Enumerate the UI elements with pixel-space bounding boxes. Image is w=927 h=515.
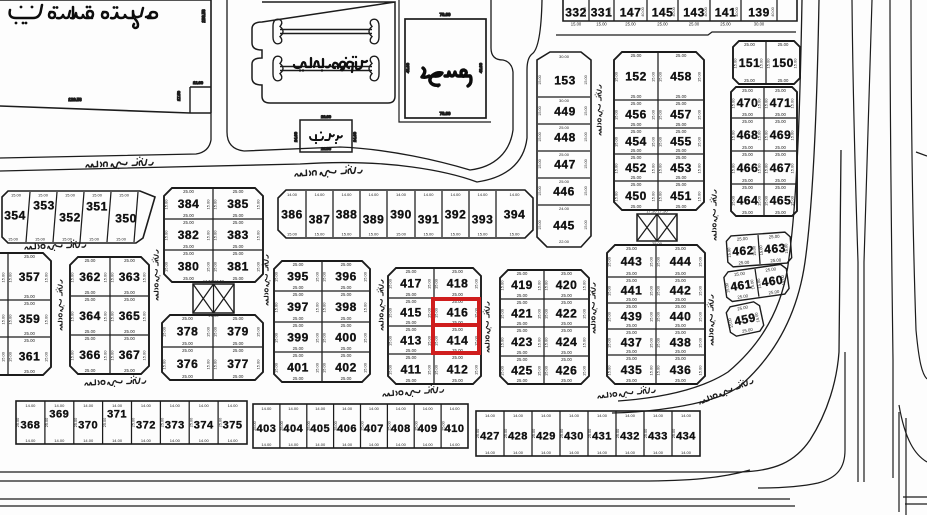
svg-text:15.00: 15.00 (474, 278, 479, 289)
svg-text:15.00: 15.00 (606, 285, 611, 296)
svg-text:40.00: 40.00 (771, 7, 775, 17)
svg-text:15.00: 15.00 (7, 351, 12, 362)
svg-text:15.00: 15.00 (206, 326, 211, 337)
svg-text:25.00: 25.00 (775, 185, 786, 190)
svg-text:15.00: 15.00 (657, 163, 662, 174)
svg-text:25.00: 25.00 (561, 293, 572, 298)
svg-text:14.00: 14.00 (170, 438, 181, 443)
svg-text:15.00: 15.00 (315, 271, 320, 282)
svg-text:439: 439 (621, 309, 643, 323)
svg-text:25.00: 25.00 (561, 321, 572, 326)
svg-text:14.00: 14.00 (199, 403, 210, 408)
svg-text:25.00: 25.00 (233, 341, 244, 346)
svg-text:25.00: 25.00 (182, 316, 193, 321)
svg-text:25.00: 25.00 (183, 220, 194, 225)
svg-text:150: 150 (772, 56, 794, 70)
svg-text:15.00: 15.00 (212, 359, 217, 370)
svg-text:361: 361 (19, 349, 41, 363)
svg-text:15.00: 15.00 (613, 163, 618, 174)
svg-text:15.00: 15.00 (651, 191, 656, 202)
svg-text:15.00: 15.00 (537, 337, 542, 348)
svg-text:25.00: 25.00 (388, 421, 392, 431)
svg-text:15.00: 15.00 (212, 261, 217, 272)
svg-text:15.00: 15.00 (1, 351, 6, 362)
svg-text:14.00: 14.00 (369, 406, 380, 411)
svg-text:408: 408 (391, 423, 411, 435)
svg-text:25.00: 25.00 (631, 122, 642, 127)
svg-text:25.00: 25.00 (24, 338, 35, 343)
svg-text:15.00: 15.00 (606, 365, 611, 376)
svg-text:25.00: 25.00 (742, 210, 753, 215)
svg-text:14.00: 14.00 (450, 192, 461, 197)
svg-text:17.50 17.50: 17.50 17.50 (646, 209, 668, 214)
svg-text:25.00: 25.00 (778, 78, 789, 83)
svg-text:15.00: 15.00 (655, 365, 660, 376)
svg-text:420: 420 (556, 278, 578, 292)
svg-text:402: 402 (335, 360, 357, 374)
svg-text:15.00: 15.00 (584, 75, 588, 85)
svg-text:25.00: 25.00 (737, 236, 749, 242)
svg-text:15.00: 15.00 (584, 132, 588, 142)
svg-text:15.00: 15.00 (11, 193, 22, 198)
svg-text:14.00: 14.00 (513, 450, 524, 455)
svg-text:14.00: 14.00 (261, 406, 272, 411)
svg-text:419: 419 (511, 278, 533, 292)
svg-text:25.00: 25.00 (675, 378, 686, 383)
svg-text:15.00: 15.00 (142, 350, 147, 361)
svg-text:25.00: 25.00 (631, 129, 642, 134)
svg-text:15.00: 15.00 (697, 71, 702, 82)
svg-text:15.00: 15.00 (582, 337, 587, 348)
svg-text:15.00: 15.00 (427, 364, 432, 375)
svg-text:25.00: 25.00 (293, 285, 304, 290)
svg-text:15.00: 15.00 (427, 307, 432, 318)
svg-text:40.00: 40.00 (735, 7, 739, 17)
svg-text:25.00: 25.00 (626, 246, 637, 251)
svg-text:15.00: 15.00 (698, 337, 703, 348)
svg-text:424: 424 (556, 335, 578, 349)
svg-text:25.00: 25.00 (675, 356, 686, 361)
svg-text:15.00: 15.00 (433, 278, 438, 289)
svg-text:14.00: 14.00 (228, 438, 239, 443)
svg-text:15.00: 15.00 (649, 285, 654, 296)
svg-text:15.00: 15.00 (613, 136, 618, 147)
svg-text:15.00: 15.00 (758, 244, 764, 255)
svg-text:15.00: 15.00 (613, 71, 618, 82)
svg-text:25.00: 25.00 (626, 271, 637, 276)
svg-text:25.00: 25.00 (517, 293, 528, 298)
svg-text:25.00: 25.00 (74, 418, 78, 428)
svg-text:401: 401 (287, 360, 309, 374)
svg-text:25.00: 25.00 (672, 429, 676, 439)
svg-text:15.00: 15.00 (69, 272, 74, 283)
svg-text:452: 452 (625, 161, 647, 175)
svg-text:25.00: 25.00 (361, 421, 365, 431)
svg-text:15.00: 15.00 (273, 302, 278, 313)
svg-text:15.00: 15.00 (474, 364, 479, 375)
svg-text:15.00: 15.00 (363, 332, 368, 343)
svg-text:364: 364 (79, 309, 101, 323)
svg-text:25.00: 25.00 (778, 42, 789, 47)
svg-text:40.00: 40.00 (672, 7, 676, 17)
svg-text:14.00: 14.00 (342, 406, 353, 411)
svg-text:15.00: 15.00 (538, 75, 542, 85)
svg-text:25.00: 25.00 (233, 251, 244, 256)
svg-text:351: 351 (86, 199, 108, 213)
svg-text:15.00: 15.00 (1, 272, 6, 283)
svg-text:25.00: 25.00 (616, 429, 620, 439)
svg-text:447: 447 (554, 157, 576, 171)
svg-text:25.00: 25.00 (452, 269, 463, 274)
svg-text:15.00: 15.00 (649, 311, 654, 322)
svg-text:25.00: 25.00 (626, 323, 637, 328)
svg-text:25.00: 25.00 (657, 22, 668, 27)
svg-text:14.00: 14.00 (423, 406, 434, 411)
svg-text:15.00: 15.00 (427, 278, 432, 289)
svg-text:15.00: 15.00 (321, 362, 326, 373)
svg-text:15.00: 15.00 (163, 230, 168, 241)
svg-text:468: 468 (737, 128, 759, 142)
svg-text:421: 421 (511, 306, 533, 320)
svg-text:15.00: 15.00 (763, 195, 768, 206)
svg-text:25.00: 25.00 (560, 429, 564, 439)
svg-text:390: 390 (390, 207, 412, 221)
svg-text:357: 357 (19, 270, 41, 284)
svg-text:14.00: 14.00 (112, 438, 123, 443)
svg-text:14.00: 14.00 (341, 192, 352, 197)
svg-text:25.00: 25.00 (85, 336, 96, 341)
svg-text:470: 470 (737, 96, 759, 110)
svg-text:15.00: 15.00 (537, 308, 542, 319)
svg-text:25.00: 25.00 (742, 88, 753, 93)
svg-text:14.00: 14.00 (199, 438, 210, 443)
svg-text:15.00: 15.00 (212, 199, 217, 210)
svg-text:15.00: 15.00 (161, 326, 166, 337)
svg-text:70.00: 70.00 (440, 12, 451, 17)
svg-text:14.00: 14.00 (54, 438, 65, 443)
svg-text:434: 434 (676, 431, 696, 443)
svg-text:25.00: 25.00 (676, 129, 687, 134)
svg-text:25.00: 25.00 (103, 418, 107, 428)
svg-text:15.00: 15.00 (538, 220, 542, 230)
svg-text:25.00: 25.00 (676, 94, 687, 99)
svg-text:25.00: 25.00 (183, 244, 194, 249)
svg-text:25.00: 25.00 (561, 271, 572, 276)
svg-text:15.00: 15.00 (651, 109, 656, 120)
svg-text:143: 143 (683, 5, 705, 19)
svg-text:15.00: 15.00 (538, 159, 542, 169)
svg-text:25.00: 25.00 (675, 330, 686, 335)
svg-text:25.00: 25.00 (744, 78, 755, 83)
svg-text:393: 393 (472, 212, 494, 226)
svg-text:15.00: 15.00 (7, 272, 12, 283)
svg-text:25.00: 25.00 (675, 304, 686, 309)
svg-text:14.00: 14.00 (541, 450, 552, 455)
svg-text:15.00: 15.00 (142, 311, 147, 322)
svg-text:15.00: 15.00 (538, 186, 542, 196)
svg-text:25.00: 25.00 (561, 328, 572, 333)
svg-text:25.00: 25.00 (233, 189, 244, 194)
svg-text:392: 392 (445, 207, 467, 221)
svg-text:15.00: 15.00 (273, 362, 278, 373)
svg-text:25.00: 25.00 (775, 119, 786, 124)
svg-text:422: 422 (556, 306, 578, 320)
svg-text:25.00: 25.00 (406, 269, 417, 274)
svg-text:15.00: 15.00 (790, 130, 795, 141)
svg-text:15.00: 15.00 (657, 71, 662, 82)
svg-text:25.00: 25.00 (452, 378, 463, 383)
svg-text:25.00: 25.00 (293, 353, 304, 358)
svg-text:458: 458 (670, 69, 692, 83)
svg-text:25.00: 25.00 (770, 257, 782, 263)
svg-text:70.00: 70.00 (440, 111, 451, 116)
svg-text:15.00: 15.00 (783, 243, 789, 254)
svg-text:371: 371 (107, 409, 127, 421)
svg-text:14.00: 14.00 (141, 438, 152, 443)
svg-text:435: 435 (621, 363, 643, 377)
svg-text:25.00: 25.00 (631, 175, 642, 180)
svg-text:15.00: 15.00 (256, 199, 261, 210)
svg-text:25.00: 25.00 (626, 349, 637, 354)
svg-text:25.00: 25.00 (85, 329, 96, 334)
svg-text:25.00: 25.00 (504, 429, 508, 439)
svg-text:15.00: 15.00 (543, 337, 548, 348)
svg-text:398: 398 (335, 300, 357, 314)
svg-text:25.00: 25.00 (675, 349, 686, 354)
svg-text:25.00: 25.00 (626, 356, 637, 361)
svg-text:456: 456 (625, 107, 647, 121)
svg-text:433: 433 (648, 431, 668, 443)
svg-text:14.00: 14.00 (569, 450, 580, 455)
svg-text:377: 377 (227, 357, 249, 371)
svg-text:15.00: 15.00 (38, 193, 49, 198)
svg-text:25.00: 25.00 (532, 429, 536, 439)
svg-text:404: 404 (283, 423, 303, 435)
svg-text:25.00: 25.00 (233, 316, 244, 321)
svg-text:373: 373 (165, 420, 185, 432)
svg-text:14.00: 14.00 (485, 450, 496, 455)
svg-text:25.00: 25.00 (742, 178, 753, 183)
svg-text:25.00: 25.00 (561, 350, 572, 355)
svg-text:25.00: 25.00 (631, 148, 642, 153)
svg-text:14.00: 14.00 (569, 413, 580, 418)
svg-text:363: 363 (119, 270, 141, 284)
svg-text:25.00: 25.00 (16, 418, 20, 428)
svg-text:406: 406 (337, 423, 357, 435)
svg-text:14.00: 14.00 (228, 403, 239, 408)
svg-text:15.00: 15.00 (657, 109, 662, 120)
svg-text:15.00: 15.00 (596, 22, 607, 27)
svg-text:25.00: 25.00 (293, 323, 304, 328)
svg-text:25.00: 25.00 (183, 189, 194, 194)
svg-text:145: 145 (652, 5, 674, 19)
svg-text:40.00: 40.00 (608, 7, 612, 17)
svg-text:147: 147 (620, 5, 642, 19)
svg-text:25.00: 25.00 (559, 179, 570, 184)
svg-text:40.00: 40.00 (641, 7, 645, 17)
svg-text:15.00: 15.00 (698, 365, 703, 376)
svg-text:25.00: 25.00 (775, 210, 786, 215)
svg-text:15.00: 15.00 (763, 98, 768, 109)
svg-text:25.00: 25.00 (631, 204, 642, 209)
svg-text:14.00: 14.00 (83, 438, 94, 443)
svg-text:15.00: 15.00 (44, 272, 49, 283)
svg-text:25.00: 25.00 (676, 182, 687, 187)
svg-text:152: 152 (625, 69, 647, 83)
svg-text:445: 445 (553, 218, 575, 232)
svg-text:15.00: 15.00 (499, 280, 504, 291)
svg-text:385: 385 (227, 197, 249, 211)
svg-text:15.00: 15.00 (651, 136, 656, 147)
svg-text:25.00: 25.00 (676, 53, 687, 58)
svg-text:455: 455 (670, 134, 692, 148)
svg-text:471: 471 (770, 96, 792, 110)
svg-text:25.00: 25.00 (441, 421, 445, 431)
svg-text:15.00: 15.00 (433, 364, 438, 375)
svg-text:14.00: 14.00 (396, 192, 407, 197)
svg-text:25.00: 25.00 (517, 378, 528, 383)
svg-text:25.00: 25.00 (625, 22, 636, 27)
svg-text:15.00: 15.00 (206, 359, 211, 370)
svg-text:15.00: 15.00 (651, 71, 656, 82)
svg-text:40.00: 40.00 (583, 7, 587, 17)
svg-text:25.00: 25.00 (675, 278, 686, 283)
svg-text:15.00: 15.00 (256, 261, 261, 272)
svg-text:25.00: 25.00 (561, 357, 572, 362)
svg-text:15.00: 15.00 (757, 195, 762, 206)
svg-text:25.00: 25.00 (517, 357, 528, 362)
svg-text:25.00: 25.00 (406, 320, 417, 325)
svg-text:25.00: 25.00 (769, 234, 781, 240)
svg-text:379: 379 (227, 324, 249, 338)
svg-text:418: 418 (447, 276, 469, 290)
svg-text:15.00: 15.00 (116, 237, 127, 242)
svg-text:370: 370 (78, 420, 98, 432)
svg-text:15.00: 15.00 (92, 193, 103, 198)
svg-text:15.00: 15.00 (103, 350, 108, 361)
svg-text:14.00: 14.00 (287, 192, 298, 197)
svg-text:15.00: 15.00 (582, 308, 587, 319)
svg-text:375: 375 (223, 420, 243, 432)
svg-text:389: 389 (363, 212, 385, 226)
svg-text:14.00: 14.00 (597, 413, 608, 418)
svg-text:30.00: 30.00 (754, 22, 765, 27)
svg-text:25.00: 25.00 (742, 185, 753, 190)
svg-text:25.00: 25.00 (626, 304, 637, 309)
svg-text:25.00: 25.00 (233, 276, 244, 281)
svg-text:15.00: 15.00 (315, 302, 320, 313)
svg-text:25.00: 25.00 (182, 348, 193, 353)
svg-text:25.00: 25.00 (406, 348, 417, 353)
svg-text:429: 429 (536, 431, 556, 443)
svg-text:25.00: 25.00 (675, 246, 686, 251)
svg-text:15.00: 15.00 (65, 193, 76, 198)
svg-text:15.00: 15.00 (423, 232, 434, 237)
svg-text:15.00: 15.00 (161, 359, 166, 370)
svg-text:138.58: 138.58 (201, 9, 206, 23)
svg-text:376: 376 (177, 357, 199, 371)
svg-text:400: 400 (335, 330, 357, 344)
svg-text:15.00: 15.00 (315, 332, 320, 343)
svg-text:362: 362 (79, 270, 101, 284)
svg-text:14.00: 14.00 (396, 442, 407, 447)
svg-text:15.00: 15.00 (730, 195, 735, 206)
svg-text:25.00: 25.00 (124, 329, 135, 334)
svg-text:25.00: 25.00 (293, 346, 304, 351)
svg-text:25.00: 25.00 (307, 421, 311, 431)
svg-text:15.00: 15.00 (697, 163, 702, 174)
svg-text:380: 380 (178, 259, 200, 273)
svg-text:15.00: 15.00 (477, 232, 488, 237)
svg-text:15.00: 15.00 (44, 314, 49, 325)
svg-text:15.00: 15.00 (212, 326, 217, 337)
svg-text:15.00: 15.00 (759, 58, 764, 69)
svg-text:15.00: 15.00 (273, 332, 278, 343)
svg-text:446: 446 (553, 184, 575, 198)
svg-text:25.00: 25.00 (517, 300, 528, 305)
svg-text:26.00: 26.00 (321, 146, 332, 151)
svg-text:25.00: 25.00 (85, 290, 96, 295)
svg-text:426: 426 (556, 363, 578, 377)
svg-text:25.00: 25.00 (406, 327, 417, 332)
svg-text:14.00: 14.00 (83, 403, 94, 408)
svg-text:432: 432 (620, 431, 640, 443)
svg-text:15.00: 15.00 (109, 272, 114, 283)
svg-text:15.00: 15.00 (657, 136, 662, 147)
svg-text:15.00: 15.00 (321, 332, 326, 343)
svg-text:25.00: 25.00 (452, 327, 463, 332)
svg-text:388: 388 (336, 207, 358, 221)
svg-text:352: 352 (59, 210, 81, 224)
svg-text:14.00: 14.00 (681, 450, 692, 455)
svg-text:24.00: 24.00 (352, 131, 357, 142)
svg-text:25.00: 25.00 (124, 336, 135, 341)
svg-text:25.00: 25.00 (406, 292, 417, 297)
svg-text:129.58: 129.58 (68, 97, 82, 102)
svg-text:25.00: 25.00 (233, 374, 244, 379)
svg-text:395: 395 (287, 269, 309, 283)
svg-text:141: 141 (715, 5, 737, 19)
svg-text:25.00: 25.00 (631, 53, 642, 58)
svg-text:14.00: 14.00 (509, 192, 520, 197)
svg-text:378: 378 (177, 324, 199, 338)
svg-text:15.00: 15.00 (584, 220, 588, 230)
svg-text:15.00: 15.00 (793, 58, 798, 69)
svg-text:15.00: 15.00 (509, 232, 520, 237)
svg-text:25.00: 25.00 (233, 220, 244, 225)
svg-text:469: 469 (770, 128, 792, 142)
svg-text:25.00: 25.00 (24, 369, 35, 374)
svg-text:15.00: 15.00 (655, 285, 660, 296)
svg-text:15.00: 15.00 (697, 109, 702, 120)
svg-text:15.00: 15.00 (649, 256, 654, 267)
svg-text:25.00: 25.00 (293, 316, 304, 321)
svg-text:25.00: 25.00 (183, 213, 194, 218)
svg-text:15.00: 15.00 (363, 271, 368, 282)
svg-text:25.00: 25.00 (406, 299, 417, 304)
svg-text:387: 387 (309, 212, 331, 226)
svg-text:15.00: 15.00 (763, 130, 768, 141)
svg-text:25.00: 25.00 (775, 178, 786, 183)
svg-text:25.00: 25.00 (738, 260, 750, 266)
svg-text:14.00: 14.00 (288, 406, 299, 411)
svg-text:366: 366 (79, 348, 101, 362)
svg-text:25.00: 25.00 (676, 204, 687, 209)
svg-text:425: 425 (511, 363, 533, 377)
svg-text:25.00: 25.00 (124, 290, 135, 295)
svg-text:15.00: 15.00 (35, 237, 46, 242)
svg-text:443: 443 (621, 254, 643, 268)
